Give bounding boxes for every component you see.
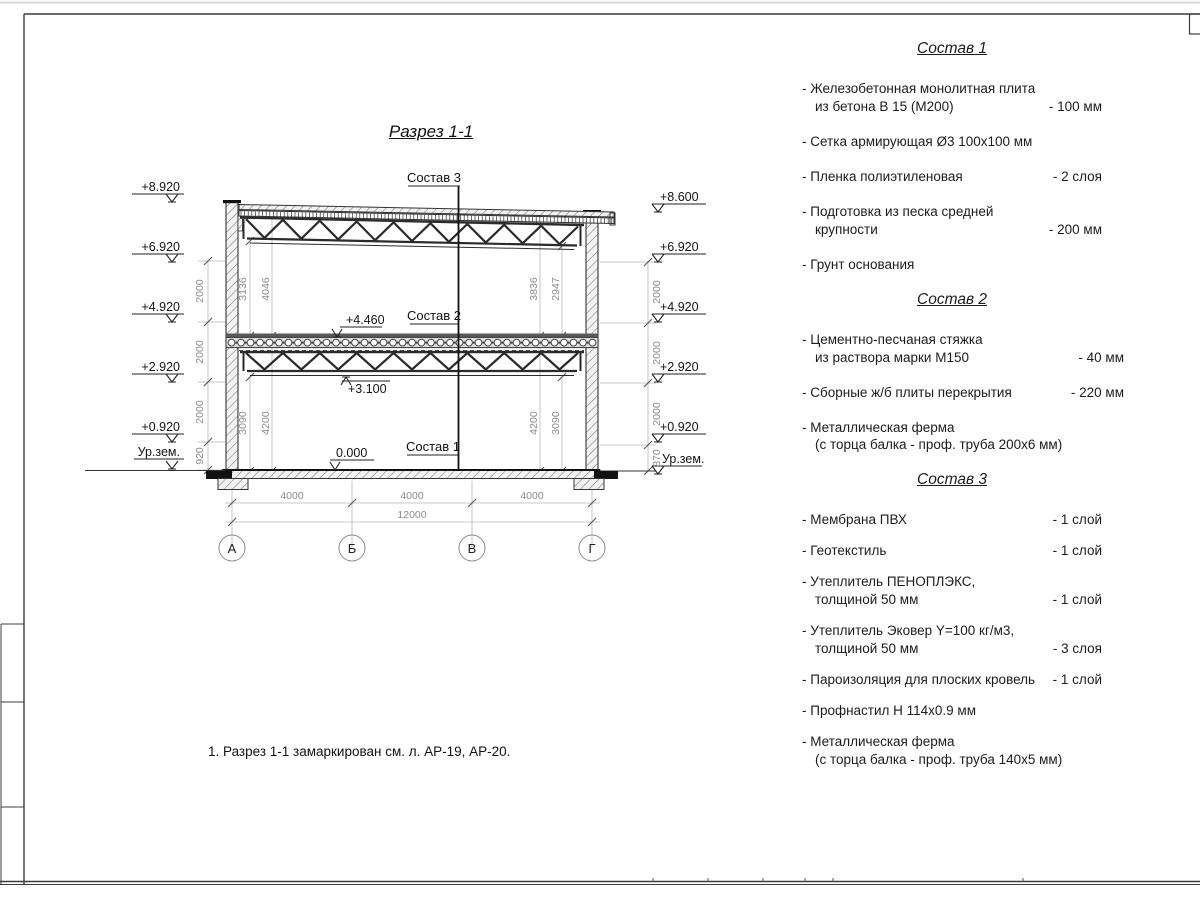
dim-lr-1: 3090	[550, 411, 562, 435]
axis-bubbles: А Б В Г	[219, 535, 605, 561]
callout-sostav-3: Состав 3	[407, 170, 461, 185]
spec-item: - Пароизоляция для плоских кровель- 1 сл…	[802, 671, 1102, 689]
axis-v: В	[468, 541, 477, 556]
left-parapet-cap	[223, 200, 241, 203]
mid-floor-slab	[226, 334, 598, 351]
level-left-0: +8.920	[141, 180, 180, 194]
mark-zero: 0.000	[336, 446, 367, 460]
spec-item: - Утеплитель Эковер Y=100 кг/м3, толщино…	[802, 622, 1102, 658]
dim-ll-1: 4200	[260, 411, 272, 435]
dim-span-0: 4000	[280, 490, 304, 502]
spec-item: - Сборные ж/б плиты перекрытия- 220 мм	[802, 384, 1124, 402]
dim-lr-0: 4200	[528, 411, 540, 435]
drawing-title: Разрез 1-1	[331, 122, 531, 142]
left-footing-step	[206, 471, 232, 479]
axis-g: Г	[588, 541, 595, 556]
ground-label-left: Ур.зем.	[138, 445, 180, 459]
spec-item: - Подготовка из песка средней крупности-…	[802, 203, 1102, 239]
level-left-4: +0.920	[141, 420, 180, 434]
spec-item: - Профнастил Н 114х0.9 мм	[802, 702, 1102, 720]
level-left-2: +4.920	[141, 300, 180, 314]
spec-item: - Мембрана ПВХ- 1 слой	[802, 511, 1102, 529]
callout-sostav-1: Состав 1	[406, 439, 460, 454]
left-footing	[218, 479, 248, 490]
axis-a: А	[228, 541, 237, 556]
spec-title-3: Состав 3	[802, 471, 1102, 489]
ground-label-right: Ур.зем.	[662, 452, 704, 466]
dim-span-1: 4000	[400, 490, 424, 502]
dim-right-1: 2000	[651, 341, 663, 365]
dim-right-2: 2000	[651, 402, 663, 426]
sheet-note: 1. Разрез 1-1 замаркирован см. л. АР-19,…	[208, 744, 510, 759]
mid-truss	[240, 352, 584, 376]
dim-right-3: 870	[651, 449, 663, 467]
spec-lists: Состав 1 - Железобетонная монолитная пли…	[802, 28, 1124, 782]
level-right-4: +0.920	[660, 420, 699, 434]
callout-sostav-2: Состав 2	[407, 308, 461, 323]
level-left-3: +2.920	[141, 360, 180, 374]
right-elevation-marks: +8.600 +6.920 +4.920 +2.920 +0.920 Ур.зе…	[660, 190, 704, 466]
spec-title-2: Состав 2	[802, 291, 1102, 309]
dim-ll-0: 3090	[237, 411, 249, 435]
dim-right-0: 2000	[651, 280, 663, 304]
mark-mid-top: +4.460	[346, 313, 385, 327]
spec-item: - Геотекстиль- 1 слой	[802, 542, 1102, 560]
spec-item: - Грунт основания	[802, 256, 1102, 274]
level-right-0: +8.600	[660, 190, 699, 204]
ground-slab	[85, 470, 656, 490]
dim-left-1: 2000	[194, 340, 206, 364]
dim-left-3: 920	[194, 447, 206, 465]
drawing-sheet: Состав 3 Состав 2 Состав 1 +4.460 0.000 …	[0, 0, 1200, 900]
axis-b: Б	[348, 541, 357, 556]
level-right-3: +2.920	[660, 360, 699, 374]
dim-left-2: 2000	[194, 400, 206, 424]
mark-mid-bottom: +3.100	[348, 382, 387, 396]
dim-span-2: 4000	[520, 490, 544, 502]
dim-ur-1: 2947	[550, 277, 562, 301]
spec-item: - Сетка армирующая Ø3 100х100 мм	[802, 133, 1102, 151]
dim-ur-0: 3836	[528, 277, 540, 301]
bottom-dimensions: 4000 4000 4000 12000	[280, 490, 544, 521]
level-right-2: +4.920	[660, 300, 699, 314]
right-footing-step	[594, 471, 618, 479]
dim-total: 12000	[397, 509, 426, 521]
dim-ul-0: 3136	[237, 277, 249, 301]
spec-section-2: Состав 2 - Цементно-песчаная стяжка из р…	[802, 291, 1124, 455]
level-right-1: +6.920	[660, 240, 699, 254]
level-left-1: +6.920	[141, 240, 180, 254]
dim-left-0: 2000	[194, 279, 206, 303]
spec-item: - Железобетонная монолитная плита из бет…	[802, 80, 1102, 116]
right-footing	[574, 479, 604, 490]
spec-item: - Металлическая ферма (с торца балка - п…	[802, 733, 1102, 769]
spec-item: - Металлическая ферма (с торца балка - п…	[802, 419, 1124, 455]
spec-section-1: Состав 1 - Железобетонная монолитная пли…	[802, 40, 1124, 274]
spec-item: - Утеплитель ПЕНОПЛЭКС, толщиной 50 мм- …	[802, 573, 1102, 609]
spec-section-3: Состав 3 - Мембрана ПВХ- 1 слой - Геотек…	[802, 471, 1124, 769]
dim-ul-1: 4046	[260, 277, 272, 301]
spec-item: - Пленка полиэтиленовая- 2 слоя	[802, 168, 1102, 186]
spec-item: - Цементно-песчаная стяжка из раствора м…	[802, 331, 1124, 367]
spec-title-1: Состав 1	[802, 40, 1102, 58]
